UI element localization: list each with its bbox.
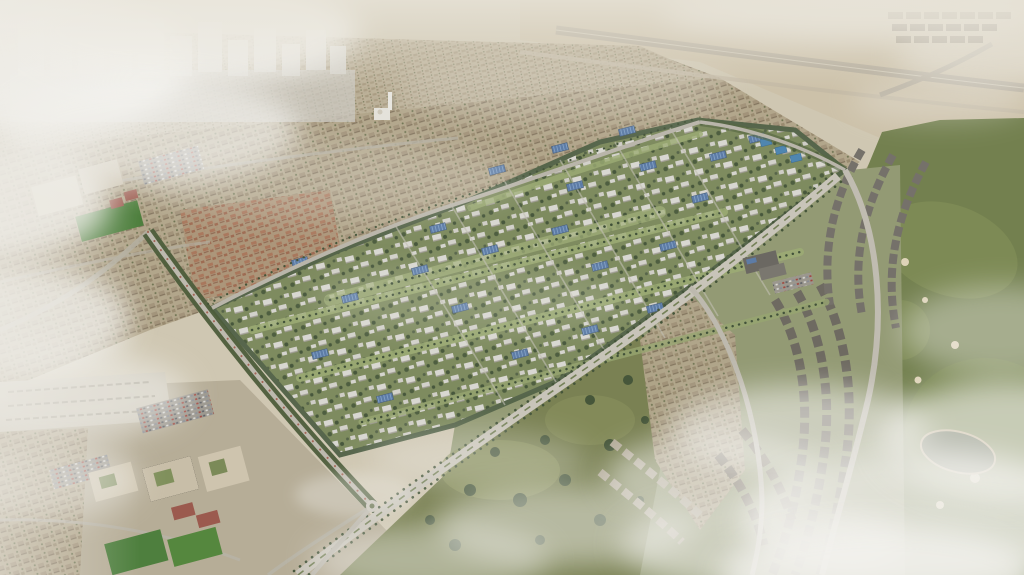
cloud	[310, 265, 630, 335]
cloud	[370, 430, 590, 490]
minaret-shadow	[392, 96, 395, 110]
minaret	[388, 92, 392, 110]
cloud	[295, 473, 415, 517]
cloud	[140, 140, 520, 220]
aerial-render: Aerial render of a desert master-planned…	[0, 0, 1024, 575]
aerial-scene: Aerial render of a desert master-planned…	[0, 0, 1024, 575]
haze-top	[0, 0, 1024, 90]
mosque-dome	[378, 110, 383, 115]
haze-left	[0, 0, 140, 575]
mosque-hall	[374, 108, 390, 120]
